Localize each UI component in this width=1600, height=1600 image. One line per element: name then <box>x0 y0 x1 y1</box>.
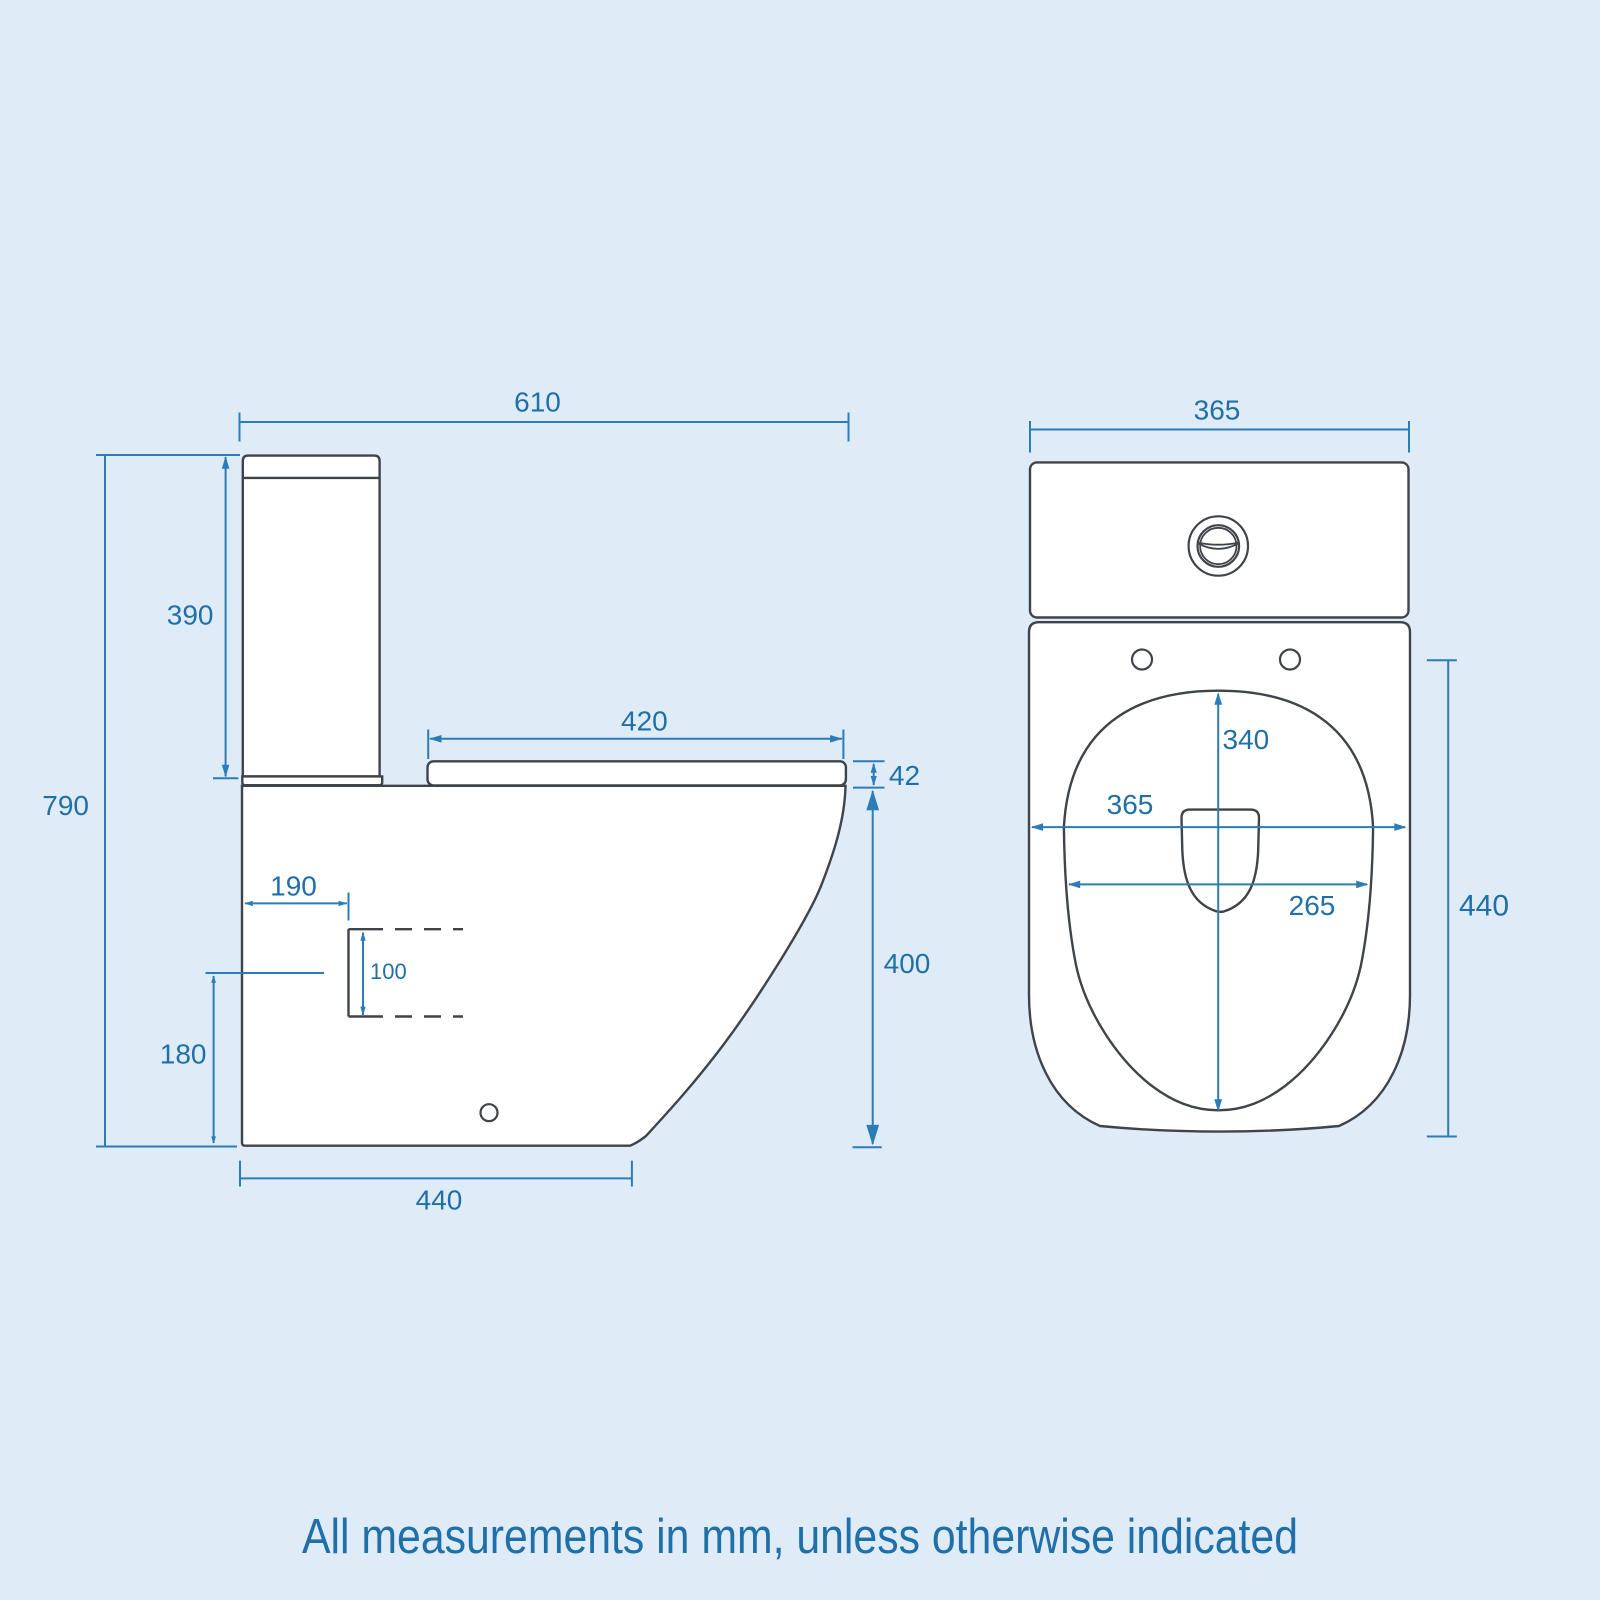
svg-text:610: 610 <box>514 387 561 418</box>
svg-text:All measurements in mm, unless: All measurements in mm, unless otherwise… <box>302 1510 1298 1564</box>
svg-text:265: 265 <box>1289 890 1336 921</box>
svg-text:390: 390 <box>167 600 214 631</box>
svg-text:400: 400 <box>884 948 931 979</box>
svg-text:42: 42 <box>889 760 920 791</box>
svg-text:790: 790 <box>42 790 89 821</box>
svg-text:180: 180 <box>160 1039 207 1070</box>
svg-text:190: 190 <box>270 871 317 902</box>
svg-text:440: 440 <box>416 1185 463 1216</box>
svg-text:420: 420 <box>621 706 668 737</box>
svg-text:440: 440 <box>1459 890 1509 923</box>
svg-text:100: 100 <box>370 959 407 984</box>
svg-text:365: 365 <box>1107 789 1154 820</box>
svg-text:365: 365 <box>1194 395 1241 426</box>
svg-text:340: 340 <box>1223 724 1270 755</box>
